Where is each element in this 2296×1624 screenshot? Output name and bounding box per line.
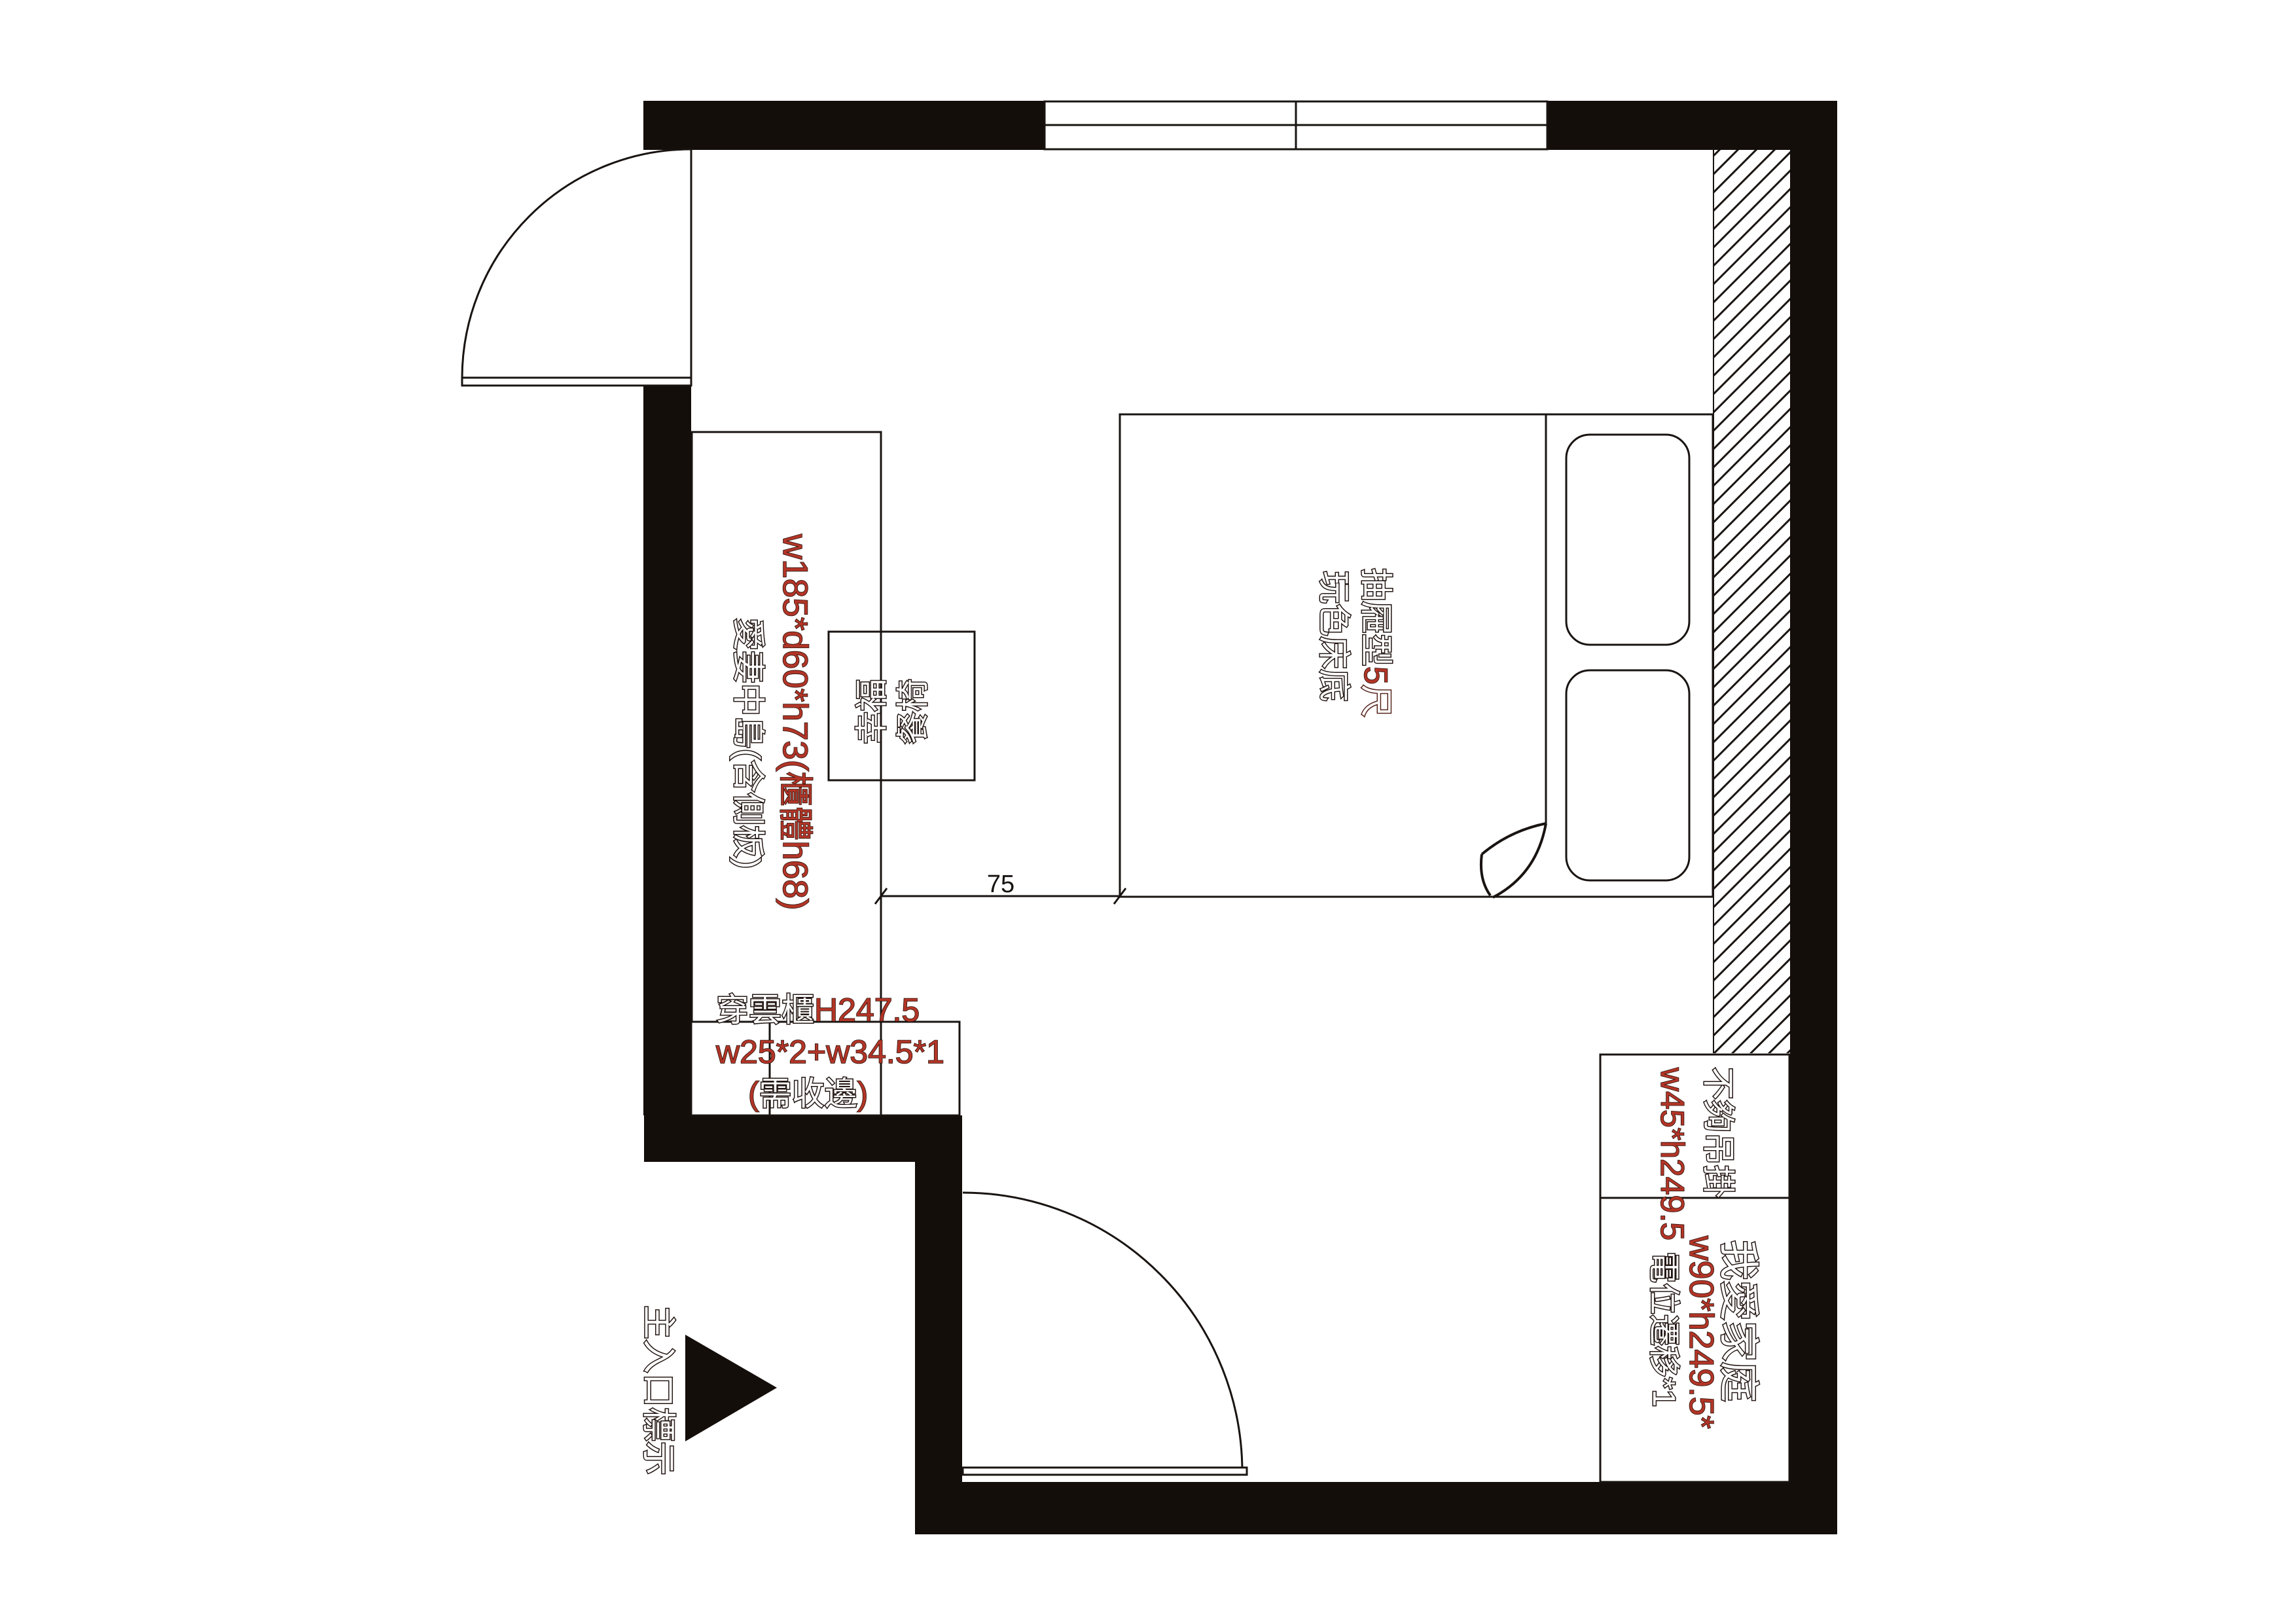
svg-text:主入口標示: 主入口標示 [639, 1305, 677, 1475]
svg-text:抽屜型5尺: 抽屜型5尺 [1357, 568, 1394, 717]
svg-text:w185*d60*h73(櫃體h68): w185*d60*h73(櫃體h68) [776, 533, 814, 911]
svg-text:愛妻中島(含側板): 愛妻中島(含側板) [730, 618, 766, 869]
svg-text:不夠吊掛: 不夠吊掛 [1700, 1067, 1736, 1198]
svg-text:w25*2+w34.5*1: w25*2+w34.5*1 [715, 1034, 944, 1070]
svg-text:我愛家庭: 我愛家庭 [1715, 1240, 1761, 1402]
svg-text:75: 75 [987, 871, 1014, 898]
svg-text:穿雲櫃H247.5: 穿雲櫃H247.5 [716, 992, 920, 1028]
svg-text:w45*h249.5: w45*h249.5 [1654, 1067, 1691, 1240]
svg-text:幸福: 幸福 [853, 679, 890, 744]
svg-text:(需收邊): (需收邊) [748, 1075, 868, 1112]
svg-text:餐椅: 餐椅 [895, 679, 931, 744]
svg-text:玩色床底: 玩色床底 [1316, 571, 1352, 702]
svg-text:w90*h249.5*: w90*h249.5* [1682, 1235, 1720, 1429]
svg-text:電位遷移*1: 電位遷移*1 [1646, 1252, 1681, 1407]
